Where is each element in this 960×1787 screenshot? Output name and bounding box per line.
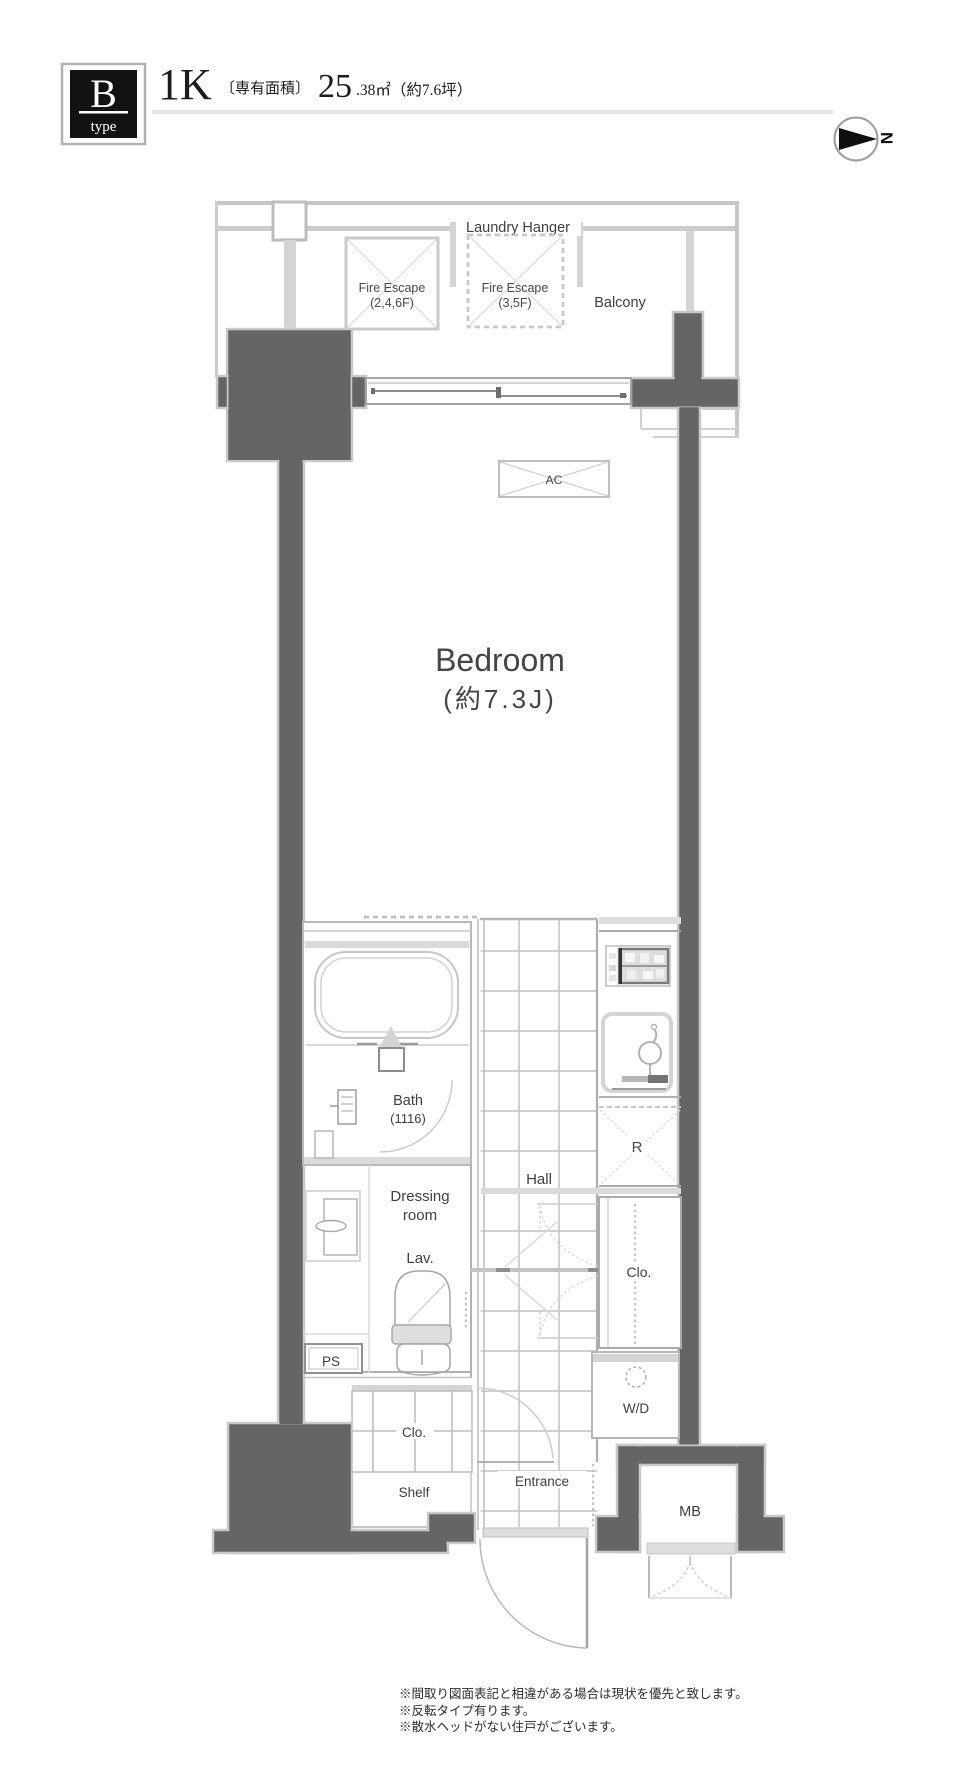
svg-text:Entrance: Entrance xyxy=(515,1474,569,1489)
svg-text:Fire Escape: Fire Escape xyxy=(359,281,426,295)
svg-text:(1116): (1116) xyxy=(390,1111,426,1126)
svg-text:B: B xyxy=(90,71,117,116)
svg-text:25: 25 xyxy=(318,68,352,105)
svg-text:room: room xyxy=(403,1207,437,1224)
svg-text:Bedroom: Bedroom xyxy=(435,642,565,678)
svg-text:Lav.: Lav. xyxy=(406,1250,433,1267)
svg-text:※散水ヘッドがない住戸がございます。: ※散水ヘッドがない住戸がございます。 xyxy=(399,1719,623,1734)
svg-text:W/D: W/D xyxy=(623,1401,649,1416)
svg-text:※反転タイプ有ります。: ※反転タイプ有ります。 xyxy=(399,1704,535,1718)
svg-text:Bath: Bath xyxy=(393,1093,423,1109)
svg-text:PS: PS xyxy=(322,1354,340,1369)
svg-text:MB: MB xyxy=(679,1504,701,1520)
svg-text:Dressing: Dressing xyxy=(390,1188,449,1205)
svg-text:〔専有面積〕: 〔専有面積〕 xyxy=(220,80,310,97)
svg-text:Clo.: Clo. xyxy=(402,1425,426,1440)
svg-text:type: type xyxy=(91,119,117,135)
svg-text:.38㎡（約7.6坪）: .38㎡（約7.6坪） xyxy=(356,81,472,99)
svg-text:R: R xyxy=(632,1139,643,1156)
svg-text:1K: 1K xyxy=(158,60,212,109)
svg-text:Shelf: Shelf xyxy=(399,1485,430,1500)
svg-text:Hall: Hall xyxy=(526,1171,552,1188)
svg-text:Clo.: Clo. xyxy=(627,1264,652,1280)
svg-text:※間取り図面表記と相違がある場合は現状を優先と致します。: ※間取り図面表記と相違がある場合は現状を優先と致します。 xyxy=(399,1686,748,1701)
svg-text:(2,4,6F): (2,4,6F) xyxy=(370,296,414,310)
svg-text:(3,5F): (3,5F) xyxy=(498,296,531,310)
svg-text:AC: AC xyxy=(546,473,563,487)
svg-text:N: N xyxy=(877,132,896,144)
svg-text:(約7.3J): (約7.3J) xyxy=(443,684,556,714)
svg-text:Fire Escape: Fire Escape xyxy=(482,281,549,295)
svg-text:Balcony: Balcony xyxy=(594,295,646,311)
